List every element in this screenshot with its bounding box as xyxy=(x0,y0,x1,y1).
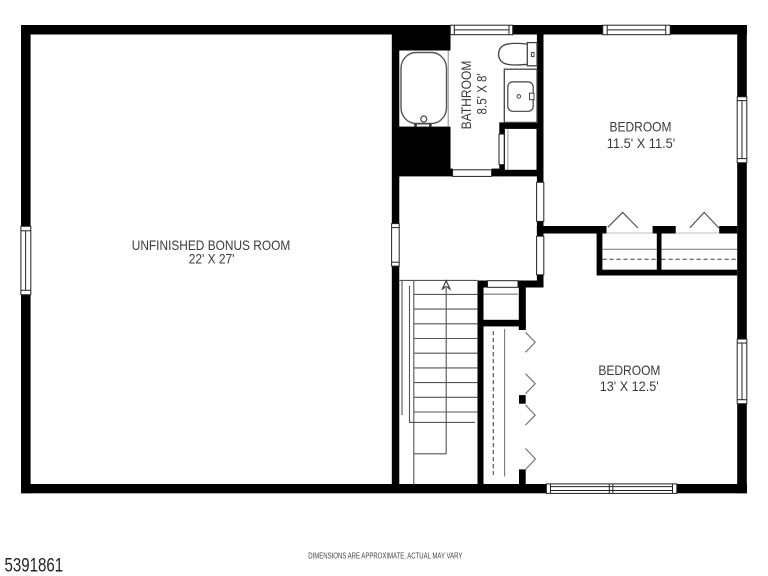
svg-text:BATHROOM: BATHROOM xyxy=(458,61,474,130)
svg-text:8.5' X 8': 8.5' X 8' xyxy=(473,73,489,114)
svg-text:5391861: 5391861 xyxy=(5,556,64,576)
svg-text:11.5' X 11.5': 11.5' X 11.5' xyxy=(607,135,675,151)
svg-text:BEDROOM: BEDROOM xyxy=(598,362,660,378)
svg-text:DIMENSIONS ARE APPROXIMATE, AC: DIMENSIONS ARE APPROXIMATE, ACTUAL MAY V… xyxy=(308,552,463,561)
svg-text:BEDROOM: BEDROOM xyxy=(610,119,672,135)
svg-text:13' X 12.5': 13' X 12.5' xyxy=(600,378,659,394)
svg-text:22' X 27': 22' X 27' xyxy=(189,251,235,267)
